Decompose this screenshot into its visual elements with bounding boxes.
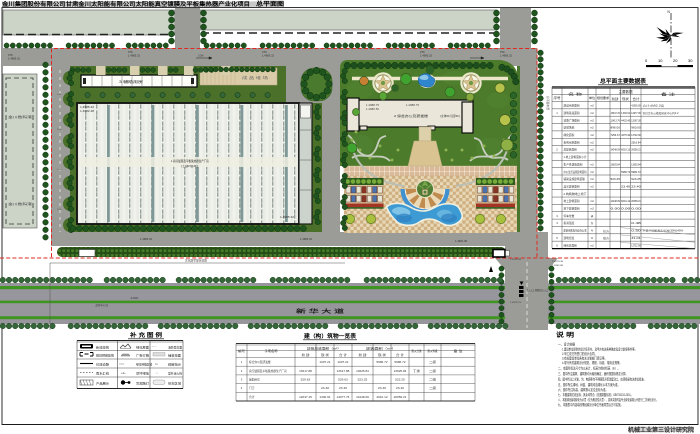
svg-text:二级: 二级 bbox=[429, 369, 437, 373]
svg-text:41526.00: 41526.00 bbox=[631, 105, 641, 108]
svg-text:1.建设单位提供的设计任务书、及甲方有关各种确定及设计前提条: 1.建设单位提供的设计任务书、及甲方有关各种确定及设计前提条件等。 bbox=[562, 347, 637, 352]
svg-text:序号: 序号 bbox=[554, 95, 561, 100]
svg-text:合计: 合计 bbox=[633, 97, 640, 101]
svg-text:4610.12: 4610.12 bbox=[376, 396, 388, 399]
svg-text:现状: 现状 bbox=[622, 97, 629, 101]
svg-text:名 称: 名 称 bbox=[568, 92, 584, 97]
svg-text:2.构筑物地上地下: 2.构筑物地上地下 bbox=[564, 192, 587, 196]
svg-text:1330.91: 1330.91 bbox=[621, 112, 631, 115]
svg-text:m2: m2 bbox=[590, 163, 594, 166]
svg-text:1.4978.15: 1.4978.15 bbox=[510, 302, 522, 304]
svg-text:总平面主要数据表: 总平面主要数据表 bbox=[600, 77, 646, 85]
svg-text:建（构）筑物一览表: 建（构）筑物一览表 bbox=[303, 332, 357, 340]
svg-text:m2: m2 bbox=[590, 171, 594, 174]
svg-text:金川数码港: 金川数码港 bbox=[8, 201, 32, 206]
svg-text:4.现行有关建筑设计规范、规程、标准、常用法规等。: 4.现行有关建筑设计规范、规程、标准、常用法规等。 bbox=[562, 360, 622, 365]
svg-text:1.4986.50: 1.4986.50 bbox=[366, 107, 380, 111]
svg-text:1.4982.88: 1.4982.88 bbox=[552, 265, 564, 267]
svg-text:生产性建筑面积: 生产性建筑面积 bbox=[564, 162, 583, 166]
svg-text:~·~: ~·~ bbox=[152, 345, 157, 349]
svg-text:金川数码港: 金川数码港 bbox=[8, 114, 32, 119]
svg-text:绿化种植区域: 绿化种植区域 bbox=[136, 361, 152, 366]
svg-text:七、本图建筑红线坐标，其余均符合（总图制图标准）GB/T50: 七、本图建筑红线坐标，其余均符合（总图制图标准）GB/T50103-2001。 bbox=[558, 392, 633, 397]
svg-text:0.3%: 0.3% bbox=[198, 55, 204, 58]
svg-text:m2: m2 bbox=[590, 141, 594, 144]
svg-text:13625.84: 13625.84 bbox=[631, 163, 641, 166]
svg-text:1.地上建筑面积小计: 1.地上建筑面积小计 bbox=[564, 155, 587, 159]
svg-text:五、图中所注绿地、树苗、建筑均应绿化以本方案为准。: 五、图中所注绿地、树苗、建筑均应绿化以本方案为准。 bbox=[558, 382, 620, 387]
svg-text:二、本图所标注尺寸均以米计，标高为绝对标高（m）。: 二、本图所标注尺寸均以米计，标高为绝对标高（m）。 bbox=[558, 366, 620, 371]
svg-text:20: 20 bbox=[673, 58, 678, 63]
svg-text:23.40: 23.40 bbox=[621, 185, 631, 188]
svg-text:0.00: 0.00 bbox=[621, 208, 631, 211]
svg-text:523.25: 523.25 bbox=[358, 379, 368, 382]
svg-text:其它建筑面积: 其它建筑面积 bbox=[564, 184, 581, 188]
svg-text:13625.84: 13625.84 bbox=[356, 370, 370, 373]
svg-text:13625.84: 13625.84 bbox=[611, 163, 621, 166]
svg-text:11413.76: 11413.76 bbox=[611, 119, 621, 122]
svg-text:960.00: 960.00 bbox=[631, 127, 641, 130]
svg-text:四、图中所注上水管、沟、电缆等均不得随意开挖改建动土，应须经: 四、图中所注上水管、沟、电缆等均不得随意开挖改建动土，应须经原有关单位批准。 bbox=[558, 377, 646, 382]
svg-text:0.00: 0.00 bbox=[631, 208, 642, 211]
svg-text:1007.21: 1007.21 bbox=[319, 361, 331, 364]
svg-text:(主体6F,局部3F): (主体6F,局部3F) bbox=[440, 114, 460, 118]
svg-text:m2: m2 bbox=[590, 185, 594, 188]
svg-text:23.40: 23.40 bbox=[631, 185, 641, 188]
svg-text:14077.76: 14077.76 bbox=[337, 396, 351, 399]
svg-text:m2: m2 bbox=[590, 208, 594, 211]
svg-text:3 辅助用房: 3 辅助用房 bbox=[119, 79, 143, 84]
svg-text:5986.72: 5986.72 bbox=[631, 171, 641, 174]
svg-text:景观路灯: 景观路灯 bbox=[136, 381, 149, 386]
svg-text:1.4985.32: 1.4985.32 bbox=[262, 54, 275, 57]
svg-text:+٥+: +٥+ bbox=[121, 371, 126, 375]
svg-text:m2: m2 bbox=[590, 149, 594, 152]
svg-text:23.40: 23.40 bbox=[321, 387, 330, 390]
svg-text:m2: m2 bbox=[590, 127, 594, 130]
svg-text:耐火等级: 耐火等级 bbox=[428, 349, 438, 353]
svg-text:门卫: 门卫 bbox=[249, 386, 255, 390]
svg-text:雨水汇线: 雨水汇线 bbox=[96, 370, 109, 375]
svg-text:辅助用房: 辅助用房 bbox=[249, 378, 260, 382]
svg-text:铺装地面: 铺装地面 bbox=[168, 352, 181, 357]
svg-text:备 注: 备 注 bbox=[454, 348, 463, 353]
svg-text:5986.72: 5986.72 bbox=[621, 171, 631, 174]
svg-text:m2: m2 bbox=[590, 105, 594, 108]
svg-text:文化路至现状道路: 文化路至现状道路 bbox=[185, 259, 207, 263]
svg-text:绿化总面积: 绿化总面积 bbox=[564, 243, 578, 247]
svg-text:主入口,预留出入口: 主入口,预留出入口 bbox=[526, 288, 549, 292]
svg-text:已建道路: 已建道路 bbox=[96, 361, 109, 366]
svg-text:补 充 图 例: 补 充 图 例 bbox=[129, 331, 163, 339]
svg-text:丁类: 丁类 bbox=[413, 369, 421, 373]
svg-text:1330.91: 1330.91 bbox=[319, 396, 331, 399]
svg-text:30: 30 bbox=[688, 58, 693, 63]
svg-text:2.甲乙双方所签订的设计合同。: 2.甲乙双方所签订的设计合同。 bbox=[562, 351, 597, 356]
svg-text:1007.21: 1007.21 bbox=[337, 361, 349, 364]
svg-text:站前场地: 站前场地 bbox=[564, 126, 575, 130]
svg-text:道路中心线: 道路中心线 bbox=[95, 303, 109, 307]
svg-text:1.4985.32: 1.4985.32 bbox=[80, 105, 95, 109]
svg-text:14248.09: 14248.09 bbox=[611, 200, 621, 203]
svg-text:广告灯箱: 广告灯箱 bbox=[136, 352, 149, 357]
svg-text:529.63: 529.63 bbox=[301, 379, 311, 382]
svg-text:规划预留建筑: 规划预留建筑 bbox=[96, 352, 114, 357]
svg-text:1.4985.32: 1.4985.32 bbox=[300, 238, 313, 241]
svg-text:-0.45%: -0.45% bbox=[130, 296, 139, 300]
svg-text:m2: m2 bbox=[590, 200, 594, 203]
svg-text:11587.30: 11587.30 bbox=[631, 119, 641, 122]
svg-text:1.4979.38: 1.4979.38 bbox=[510, 259, 522, 261]
svg-text:停车位数: 停车位数 bbox=[564, 214, 575, 218]
svg-text:1.4982.48: 1.4982.48 bbox=[80, 109, 95, 113]
svg-text:说 明: 说 明 bbox=[556, 331, 574, 339]
svg-text:总建筑面积: 总建筑面积 bbox=[564, 148, 578, 152]
svg-text:523.25: 523.25 bbox=[395, 379, 405, 382]
svg-text:13722.00: 13722.00 bbox=[631, 244, 641, 247]
svg-text:地上建筑面积: 地上建筑面积 bbox=[564, 199, 581, 203]
svg-text:1.4988.75: 1.4988.75 bbox=[406, 103, 420, 107]
svg-text:m2: m2 bbox=[590, 119, 594, 122]
svg-text:三、图中所注建筑，建筑物均为轴线确定，面积按国标规定计算。: 三、图中所注建筑，建筑物均为轴线确定，面积按国标规定计算。 bbox=[558, 371, 628, 376]
svg-text:消防登高面: 消防登高面 bbox=[168, 344, 182, 349]
svg-text:二级: 二级 bbox=[429, 360, 437, 364]
svg-text:523.25: 523.25 bbox=[631, 178, 641, 181]
svg-text:建设用地面积: 建设用地面积 bbox=[564, 104, 581, 108]
svg-text:10: 10 bbox=[658, 58, 663, 63]
svg-text:31.01: 31.01 bbox=[631, 237, 641, 240]
svg-text:编号: 编号 bbox=[238, 349, 245, 353]
svg-text:0.48: 0.48 bbox=[631, 222, 642, 225]
svg-text:13722.00: 13722.00 bbox=[631, 134, 641, 137]
svg-text:一、设计依据: 一、设计依据 bbox=[558, 342, 576, 347]
svg-text:新建: 新建 bbox=[612, 97, 619, 101]
svg-text:12047.15: 12047.15 bbox=[299, 396, 313, 399]
svg-text:未利用地面积: 未利用地面积 bbox=[564, 140, 581, 144]
svg-text:新 建: 新 建 bbox=[302, 353, 311, 357]
svg-text:23.40: 23.40 bbox=[339, 387, 348, 390]
svg-text:真空镀膜及平板集热器生产厂房: 真空镀膜及平板集热器生产厂房 bbox=[249, 369, 287, 373]
svg-text:综合办公及研发楼: 综合办公及研发楼 bbox=[249, 360, 271, 364]
svg-text:14248.09: 14248.09 bbox=[356, 396, 370, 399]
svg-text:m2: m2 bbox=[590, 244, 594, 247]
svg-text:5986.72: 5986.72 bbox=[376, 361, 388, 364]
svg-text:合 计: 合 计 bbox=[339, 353, 348, 357]
svg-text:23.40: 23.40 bbox=[396, 387, 405, 390]
svg-text:子项名称: 子项名称 bbox=[265, 348, 278, 353]
svg-text:1.4988.75: 1.4988.75 bbox=[366, 103, 380, 107]
svg-text:5986.72: 5986.72 bbox=[394, 361, 406, 364]
svg-text:1.4985.32: 1.4985.32 bbox=[140, 238, 153, 241]
svg-text:建筑密度: 建筑密度 bbox=[564, 236, 575, 240]
svg-text:挖方: 挖方 bbox=[603, 229, 610, 233]
svg-text:建筑基底面积（m²）: 建筑基底面积（m²） bbox=[307, 346, 341, 350]
svg-text:1.4981.38: 1.4981.38 bbox=[455, 240, 468, 243]
svg-text:建筑基底面积: 建筑基底面积 bbox=[564, 111, 581, 115]
svg-text:现 状: 现 状 bbox=[378, 353, 387, 357]
svg-text:m2: m2 bbox=[590, 112, 594, 115]
svg-text:辅助设施建筑面积: 辅助设施建筑面积 bbox=[564, 177, 586, 181]
svg-text:4075.40: 4075.40 bbox=[621, 134, 631, 137]
svg-text:耐火分类: 耐火分类 bbox=[412, 349, 422, 353]
svg-text:新建建筑: 新建建筑 bbox=[96, 344, 109, 349]
svg-text:20058.21: 20058.21 bbox=[631, 149, 641, 152]
svg-text:0.50: 0.50 bbox=[631, 230, 642, 233]
svg-text:4432.40: 4432.40 bbox=[621, 119, 631, 122]
svg-text:1 真空镀膜及平板集热器生产厂房: 1 真空镀膜及平板集热器生产厂房 bbox=[171, 159, 209, 163]
svg-text:0.00: 0.00 bbox=[611, 208, 622, 211]
svg-text:2516.94: 2516.94 bbox=[631, 141, 641, 144]
svg-text:13617.88: 13617.88 bbox=[337, 370, 351, 373]
svg-text:八、本图绿化景观绿化为示意（仅为概念性示意），具体实施时由专: 八、本图绿化景观绿化为示意（仅为概念性示意），具体实施时由专业绿化景观公司进行二… bbox=[558, 397, 658, 402]
svg-text:13617.88: 13617.88 bbox=[299, 370, 313, 373]
svg-text:529.63: 529.63 bbox=[338, 379, 348, 382]
svg-text:停车区域: 停车区域 bbox=[168, 381, 181, 386]
svg-text:13625.84: 13625.84 bbox=[394, 370, 408, 373]
svg-text:20059.21: 20059.21 bbox=[394, 396, 408, 399]
svg-text:7254.67: 7254.67 bbox=[611, 134, 621, 137]
svg-text:备 注: 备 注 bbox=[661, 92, 677, 97]
svg-text:地下建筑面积: 地下建筑面积 bbox=[564, 207, 581, 211]
svg-text:投资强度: 投资强度 bbox=[564, 221, 575, 225]
svg-text:产品展示: 产品展示 bbox=[96, 381, 109, 386]
svg-text:6010.12: 6010.12 bbox=[621, 200, 631, 203]
svg-text:总平面布置: 总平面布置 bbox=[546, 96, 550, 110]
svg-text:道路广场面积: 道路广场面积 bbox=[564, 118, 581, 122]
svg-text:填方: 填方 bbox=[603, 236, 610, 240]
svg-text:疏散指示: 疏散指示 bbox=[168, 361, 181, 366]
svg-text:14977.06: 14977.06 bbox=[631, 112, 641, 115]
svg-text:6010.12: 6010.12 bbox=[621, 149, 631, 152]
svg-text:六、图中所注标高、建筑物以定位坐标为准。: 六、图中所注标高、建筑物以定位坐标为准。 bbox=[558, 387, 608, 392]
svg-text:成 品 堆 场: 成 品 堆 场 bbox=[242, 75, 269, 80]
svg-text:主要数据: 主要数据 bbox=[619, 89, 634, 94]
svg-text:2 综合办公及研发楼: 2 综合办公及研发楼 bbox=[394, 113, 428, 118]
svg-text:办公生活设施建筑面积: 办公生活设施建筑面积 bbox=[564, 170, 587, 174]
svg-text:13647.15: 13647.15 bbox=[611, 112, 621, 115]
svg-text:≈≈≈: ≈≈≈ bbox=[119, 362, 124, 366]
svg-text:合 计: 合 计 bbox=[396, 353, 405, 357]
svg-text:草坪绿地: 草坪绿地 bbox=[136, 370, 149, 375]
svg-text:3.有关建设单位各有关主管部门意见等。: 3.有关建设单位各有关主管部门意见等。 bbox=[562, 356, 607, 361]
svg-text:二级: 二级 bbox=[429, 386, 437, 390]
svg-text:新 华 大 道: 新 华 大 道 bbox=[296, 307, 346, 315]
svg-text:20058.21: 20058.21 bbox=[631, 200, 641, 203]
svg-text:规划要求: 规划要求 bbox=[597, 95, 609, 100]
svg-text:23.40: 23.40 bbox=[378, 387, 387, 390]
svg-text:1.4985.32: 1.4985.32 bbox=[420, 54, 433, 57]
svg-text:896.00: 896.00 bbox=[611, 127, 621, 130]
svg-text:1.4985.32: 1.4985.32 bbox=[500, 54, 513, 57]
svg-text:1.4985 32: 1.4985 32 bbox=[280, 215, 295, 219]
svg-text:绿化面积: 绿化面积 bbox=[564, 133, 575, 137]
svg-text:绿化屋面: 绿化屋面 bbox=[136, 344, 149, 349]
svg-text:1.4985.32: 1.4985.32 bbox=[8, 57, 21, 60]
svg-text:新 建: 新 建 bbox=[359, 353, 368, 357]
svg-text:九、本图表中内容增改需经原设计单位书面同意后方可实施。: 九、本图表中内容增改需经原设计单位书面同意后方可实施。 bbox=[558, 402, 623, 407]
svg-text:523.25: 523.25 bbox=[611, 178, 621, 181]
svg-text:1.4985.32: 1.4985.32 bbox=[128, 54, 141, 57]
svg-text:室外消火栓: 室外消火栓 bbox=[168, 370, 182, 375]
svg-text:m2: m2 bbox=[590, 134, 594, 137]
svg-text:(土建F级3F): (土建F级3F) bbox=[181, 164, 198, 168]
svg-text:合计: 合计 bbox=[249, 395, 255, 399]
svg-text:14248.09: 14248.09 bbox=[611, 149, 621, 152]
svg-text:m2: m2 bbox=[590, 178, 594, 181]
svg-text:建筑系数及行政办公率: 建筑系数及行政办公率 bbox=[564, 229, 587, 233]
svg-text:二级: 二级 bbox=[429, 378, 437, 382]
svg-text:单位: 单位 bbox=[589, 95, 595, 100]
svg-text:建筑面积（m²）: 建筑面积（m²） bbox=[366, 346, 396, 350]
svg-text:现 状: 现 状 bbox=[321, 353, 330, 357]
svg-text:1.4979.38: 1.4979.38 bbox=[552, 261, 564, 263]
